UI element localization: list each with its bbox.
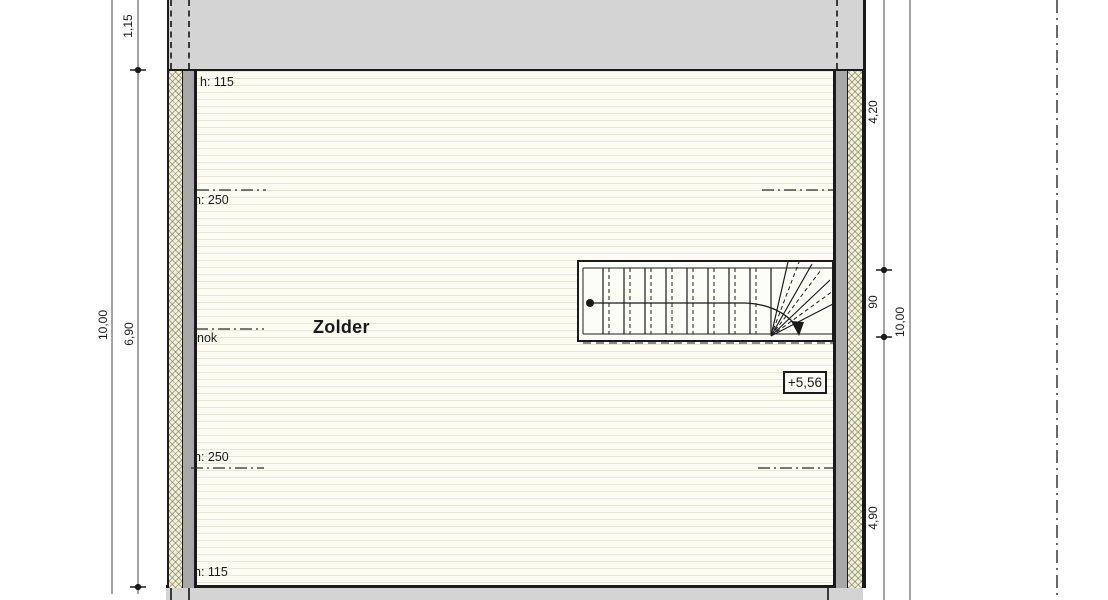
hidden-wall-line [827, 588, 829, 600]
room-label: Zolder [313, 320, 370, 335]
wall-face-line [194, 71, 197, 588]
floor-plan-canvas: h: 115 h: 250 nok h: 250 h: 115 Zolder +… [0, 0, 1108, 600]
hidden-wall-line [836, 0, 838, 69]
hidden-wall-line [188, 0, 190, 69]
dim-right-lower: 4,90 [851, 496, 895, 540]
height-label-upper: h: 250 [194, 193, 229, 208]
roof-band-bottom [166, 585, 863, 600]
wall-core [183, 71, 194, 588]
level-marker: +5,56 [783, 371, 827, 394]
dim-left-offset-top: 1,15 [106, 4, 150, 48]
height-label-bottom: h: 115 [194, 565, 228, 580]
height-label-lower: h: 250 [194, 450, 229, 465]
dim-left-inner: 6,90 [107, 312, 151, 356]
dim-right-total: 10,00 [878, 300, 922, 344]
wall-insulation-hatch [169, 71, 182, 588]
height-label-top: h: 115 [200, 75, 234, 90]
wall-core [836, 71, 847, 588]
ridge-label: nok [197, 331, 217, 346]
roof-band-top [167, 0, 866, 71]
hidden-wall-line [170, 0, 172, 69]
dim-right-upper: 4,20 [851, 90, 895, 134]
hidden-wall-line [188, 588, 190, 600]
hidden-wall-line [170, 588, 172, 600]
attic-floor [197, 71, 833, 585]
left-exterior-wall [167, 71, 197, 588]
